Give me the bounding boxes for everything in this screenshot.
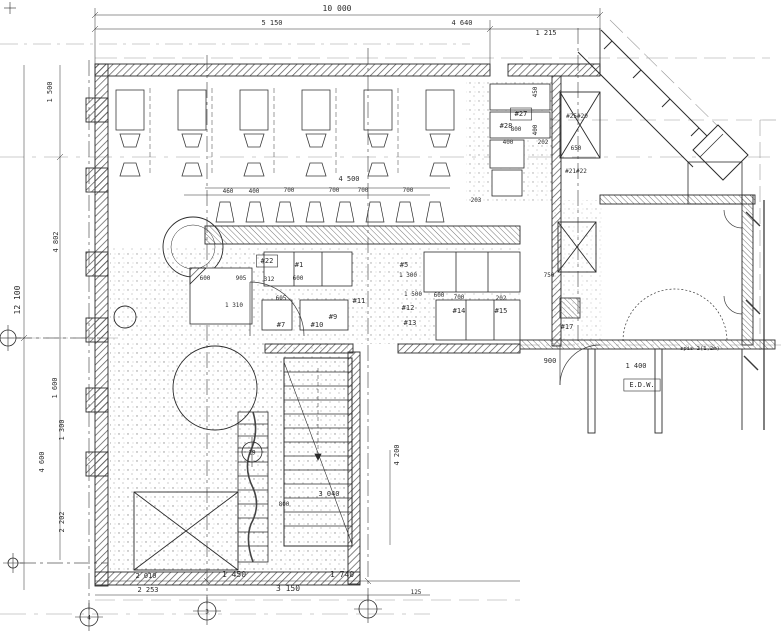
- dim-top-entry: 1 215: [535, 29, 556, 37]
- equipment-tag: #15: [495, 307, 508, 315]
- dim-interior: 202: [496, 295, 507, 302]
- grid-marker-label: 19: [248, 450, 256, 457]
- dim-left: 2 202: [58, 511, 66, 532]
- annotation-pantry: spis 2(1,2m): [680, 346, 720, 352]
- dim-kitchen: 450: [532, 86, 539, 97]
- dim-top-right: 4 640: [451, 19, 472, 27]
- grid-marker: [4, 2, 16, 14]
- equipment-tag: #12: [402, 304, 415, 312]
- dim-bottom: 2 010: [135, 572, 156, 580]
- equipment-tag: #7: [277, 321, 285, 329]
- equipment-tag: #1: [295, 261, 303, 269]
- grid-marker: [3, 553, 23, 573]
- dim-interior: 905: [236, 275, 247, 282]
- dim-room: 1 400: [625, 362, 646, 370]
- dim-bottom: 1 450: [222, 570, 246, 579]
- equipment-tag: #25#20: [566, 113, 588, 120]
- equipment-tag: #11: [353, 297, 366, 305]
- dining-tables: [116, 88, 454, 176]
- grid-marker: [354, 595, 382, 623]
- dim-kitchen: 400: [532, 124, 539, 135]
- dim-bottom: 2 253: [137, 586, 158, 594]
- equipment-tag: #14: [453, 307, 466, 315]
- dim-bottom: 125: [411, 589, 422, 596]
- dim-interior: 1 500: [404, 291, 422, 298]
- dim-kitchen: 650: [571, 145, 582, 152]
- equipment-tag: #13: [404, 319, 417, 327]
- dim-interior: 600: [293, 275, 304, 282]
- equipment-tag: #28: [500, 122, 513, 130]
- dim-left: 1 300: [58, 419, 66, 440]
- dim-left: 4 802: [52, 231, 60, 252]
- floor-plan-sheet: 10 0005 1504 6401 21512 1001 5004 8021 6…: [0, 0, 781, 641]
- dim-interior: 600: [434, 292, 445, 299]
- dim-overall-top: 10 000: [323, 4, 352, 13]
- grid-marker: 4: [75, 603, 103, 631]
- dim-interior: 700: [454, 294, 465, 301]
- dim-kitchen: 202: [538, 139, 549, 146]
- dim-door: 900: [544, 357, 557, 365]
- dim-stool: 700: [358, 187, 369, 194]
- dim-interior: 600: [200, 275, 211, 282]
- dim-stair-run: 3 040: [318, 490, 339, 498]
- diagonal-corridor: [578, 28, 748, 204]
- equipment-tag: #21#22: [565, 168, 587, 175]
- dim-interior: 1 310: [225, 302, 243, 309]
- dim-interior: 1 300: [399, 272, 417, 279]
- dim-stair: 800: [279, 501, 290, 508]
- dim-stool: 700: [284, 187, 295, 194]
- dim-left: 1 500: [46, 81, 54, 102]
- equipment-tag: #9: [329, 313, 337, 321]
- dim-stool: 400: [249, 188, 260, 195]
- dim-left: 1 600: [51, 377, 59, 398]
- dim-interior: 605: [276, 295, 287, 302]
- dim-stool: 460: [223, 188, 234, 195]
- dim-stool: 700: [403, 187, 414, 194]
- dim-stool: 700: [329, 187, 340, 194]
- dim-left: 4 600: [38, 451, 46, 472]
- grid-marker: 3: [193, 597, 221, 625]
- dim-bottom: 3 150: [276, 584, 300, 593]
- floor-plan-drawing: 10 0005 1504 6401 21512 1001 5004 8021 6…: [0, 0, 781, 641]
- equipment-tag: #17: [561, 323, 574, 331]
- equipment-tag: #22: [261, 257, 274, 265]
- grid-marker-label: 4: [87, 615, 91, 622]
- dim-overall-left: 12 100: [13, 285, 22, 314]
- grid-marker: [0, 325, 21, 351]
- dim-counter-total: 4 500: [338, 175, 359, 183]
- dim-interior: 750: [544, 272, 555, 279]
- room-label-edw: E.D.W.: [629, 381, 654, 389]
- equipment-tag: #10: [311, 321, 324, 329]
- grid-marker-label: 3: [205, 609, 209, 616]
- dim-top-left: 5 150: [261, 19, 282, 27]
- dim-kitchen: 400: [503, 139, 514, 146]
- dim-interior: 203: [471, 197, 482, 204]
- equipment-tag: #5: [400, 261, 408, 269]
- dim-stair-height: 4 200: [393, 444, 401, 465]
- dim-bottom: 1 740: [330, 570, 354, 579]
- dim-interior: 312: [264, 276, 275, 283]
- equipment-tag: #27: [515, 110, 528, 118]
